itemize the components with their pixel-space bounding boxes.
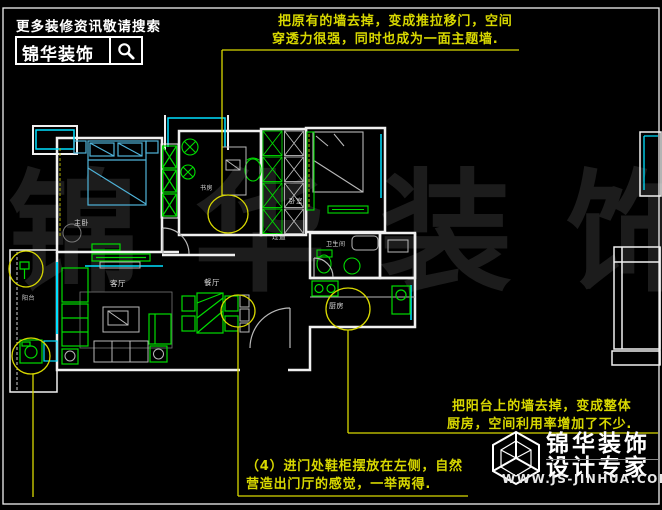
adjacent-unit	[612, 132, 661, 365]
living-furniture	[62, 262, 172, 364]
highlight-circle-study-wall	[208, 195, 248, 233]
door-swings	[163, 228, 333, 348]
footer-divider-line	[546, 459, 658, 460]
footer-website: WWW.JS-JINHUA.COM	[502, 472, 662, 486]
room-labels: 主卧 书房 卧室 过道 卫生间 客厅 餐厅 厨房 阳台	[22, 184, 346, 310]
master-bed-furniture	[74, 141, 158, 205]
annotation-top: 把原有的墙去掉，变成推拉移门，空间 穿透力很强，同时也成为一面主题墙.	[272, 13, 513, 49]
annotation-top-line1: 把原有的墙去掉，变成推拉移门，空间	[272, 13, 513, 31]
room-label-dining: 餐厅	[204, 278, 220, 287]
annotation-entry: （4）进门处鞋柜摆放在左侧，自然 营造出门厅的感觉，一举两得.	[246, 458, 463, 494]
annotation-entry-line2: 营造出门厅的感觉，一举两得.	[246, 476, 463, 494]
master-wardrobe	[92, 144, 178, 261]
room-label-corridor: 过道	[272, 232, 286, 241]
search-icon	[109, 38, 141, 63]
header-logo-box: 锦华装饰	[15, 36, 143, 65]
study-furniture	[181, 139, 261, 195]
room-label-balcony: 阳台	[22, 294, 35, 302]
floor-hatches	[10, 128, 415, 392]
room-label-master: 主卧	[74, 218, 89, 227]
room-label-living: 客厅	[110, 278, 126, 288]
walls	[10, 115, 415, 392]
header-brand: 锦华装饰	[17, 38, 109, 63]
room-label-study: 书房	[200, 184, 213, 192]
room-label-bathroom: 卫生间	[326, 240, 346, 248]
room-label-kitchen: 厨房	[329, 301, 344, 310]
balcony-fixtures	[20, 262, 42, 363]
room-label-bedroom: 卧室	[289, 196, 303, 205]
hall-closet	[263, 131, 304, 234]
annotation-top-line2: 穿透力很强，同时也成为一面主题墙.	[272, 31, 513, 49]
annotation-kitchen-line1: 把阳台上的墙去掉，变成整体	[447, 398, 632, 416]
bedroom2-furniture	[307, 132, 368, 213]
annotation-entry-line1: （4）进门处鞋柜摆放在左侧，自然	[246, 458, 463, 476]
poster-canvas: { "colors": { "background": "#000000", "…	[0, 0, 662, 510]
header-tagline: 更多装修资讯敬请搜索	[16, 15, 161, 35]
